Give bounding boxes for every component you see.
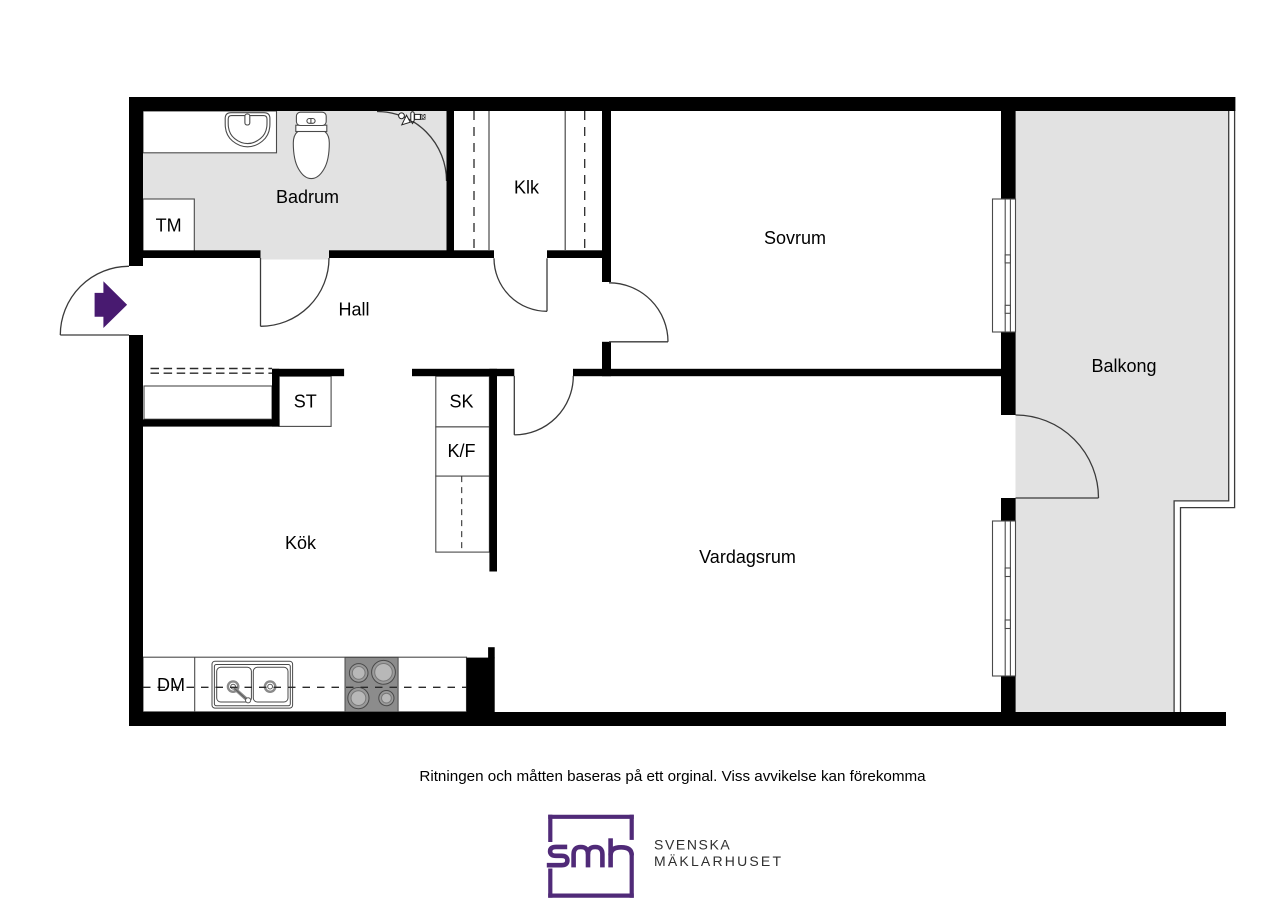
svg-text:DM: DM <box>157 675 185 695</box>
svg-text:Ritningen och måtten baseras p: Ritningen och måtten baseras på ett orgi… <box>419 768 926 785</box>
svg-text:Klk: Klk <box>514 177 540 197</box>
svg-text:SVENSKA: SVENSKA <box>654 837 731 853</box>
svg-text:Balkong: Balkong <box>1091 356 1156 376</box>
svg-text:MÄKLARHUSET: MÄKLARHUSET <box>654 853 783 869</box>
svg-text:ST: ST <box>294 391 317 411</box>
svg-text:Hall: Hall <box>338 300 369 320</box>
svg-text:K/F: K/F <box>447 441 475 461</box>
svg-text:SK: SK <box>449 392 473 412</box>
svg-text:Badrum: Badrum <box>276 187 339 207</box>
svg-text:Vardagsrum: Vardagsrum <box>699 547 796 567</box>
svg-text:Sovrum: Sovrum <box>764 228 826 248</box>
svg-text:Kök: Kök <box>285 533 317 553</box>
svg-text:TM: TM <box>156 216 182 236</box>
